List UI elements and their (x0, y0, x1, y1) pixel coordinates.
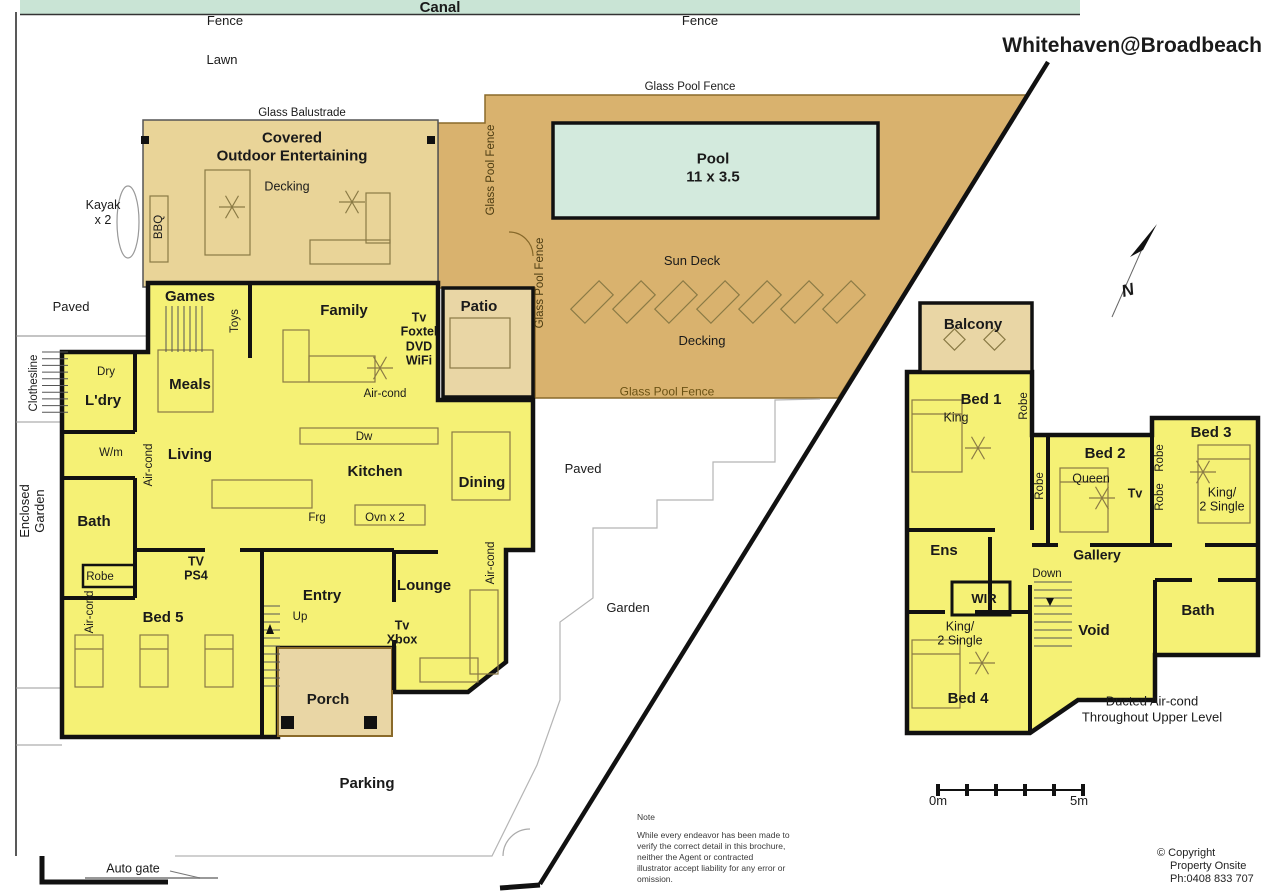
copyright-block: © CopyrightProperty OnsitePh:0408 833 70… (1157, 847, 1254, 887)
label-bed1: Bed 1 (961, 391, 1002, 409)
label-glass-pool-fence-bottom: Glass Pool Fence (620, 385, 715, 400)
label-decking-deck: Decking (679, 333, 726, 349)
label-ovn: Ovn x 2 (365, 511, 405, 525)
floor-plan: CanalFenceFenceLawnWhitehaven@Broadbeach… (0, 0, 1274, 894)
label-toys: Toys (228, 309, 242, 333)
label-robe-bed3-a: Robe (1153, 444, 1167, 472)
label-aircond-living: Air-cond (142, 444, 156, 487)
label-glass-pool-fence-top: Glass Pool Fence (645, 80, 736, 94)
boundary-foot (500, 885, 540, 888)
label-aircond-bed5: Air-cond (83, 591, 97, 634)
label-bath-upper: Bath (1181, 602, 1214, 620)
post-marker (427, 136, 435, 144)
balcony-region (920, 303, 1032, 372)
label-king-2single-bed4: King/ 2 Single (937, 620, 982, 649)
label-auto-gate: Auto gate (106, 861, 160, 876)
label-parking: Parking (339, 775, 394, 793)
note-heading: Note (637, 812, 842, 823)
label-lounge: Lounge (397, 577, 451, 595)
note-line: illustrator accept liability for any err… (637, 863, 842, 874)
label-dw: Dw (356, 430, 373, 444)
label-meals: Meals (169, 376, 211, 394)
label-bbq: BBQ (152, 215, 166, 239)
label-aircond-lounge: Air-cond (484, 542, 498, 585)
label-up: Up (293, 610, 308, 624)
label-family: Family (320, 302, 368, 320)
label-robe-hall: Robe (1033, 472, 1047, 500)
porch-post (281, 716, 294, 729)
scale-bar (938, 784, 1083, 796)
label-pool: Pool 11 x 3.5 (686, 151, 739, 188)
label-down: Down (1032, 567, 1061, 581)
label-bed2: Bed 2 (1085, 445, 1126, 463)
label-bed3: Bed 3 (1191, 424, 1232, 442)
label-bed4: Bed 4 (948, 690, 989, 708)
note-line: verify the correct detail in this brochu… (637, 841, 842, 852)
label-dry: Dry (97, 365, 115, 379)
post-marker (141, 136, 149, 144)
label-wir: WIR (971, 591, 996, 607)
label-porch: Porch (307, 691, 350, 709)
note-body: While every endeavor has been made tover… (637, 830, 842, 885)
label-entry: Entry (303, 587, 341, 605)
label-tv-bed2: Tv (1128, 486, 1143, 501)
label-glass-pool-fence-v2: Glass Pool Fence (533, 238, 547, 329)
label-bed5: Bed 5 (143, 609, 184, 627)
label-plan-title: Whitehaven@Broadbeach (1002, 33, 1262, 59)
label-frg: Frg (308, 511, 325, 525)
label-tv-xbox: Tv Xbox (387, 619, 418, 648)
label-lawn: Lawn (206, 52, 237, 68)
label-clothesline: Clothesline (27, 355, 41, 412)
label-ducted-aircond: Ducted Air-cond Throughout Upper Level (1082, 693, 1222, 724)
label-kitchen: Kitchen (347, 463, 402, 481)
label-paved-mid: Paved (565, 461, 602, 477)
label-king-2single-bed3: King/ 2 Single (1199, 486, 1244, 515)
note-line: neither the Agent or contracted (637, 852, 842, 863)
label-tv-ps4: TV PS4 (184, 555, 208, 584)
label-king-bed1: King (943, 410, 968, 425)
label-queen-bed2: Queen (1072, 471, 1110, 486)
label-living: Living (168, 446, 212, 464)
label-kayak: Kayak x 2 (86, 198, 121, 229)
label-ldry: L'dry (85, 392, 121, 410)
label-ens: Ens (930, 542, 958, 560)
label-patio: Patio (461, 298, 498, 316)
label-robe-bed1: Robe (1017, 392, 1031, 420)
label-wm: W/m (99, 446, 123, 460)
label-glass-balustrade: Glass Balustrade (258, 106, 346, 120)
copyright-line: Property Onsite (1170, 860, 1254, 873)
canal-region (20, 0, 1080, 14)
auto-gate-leader (170, 871, 200, 878)
label-robe-ground: Robe (86, 570, 114, 584)
label-tv-foxtel-dvd-wifi: Tv Foxtel DVD WiFi (401, 310, 438, 368)
north-arrow-icon (1112, 224, 1157, 317)
label-decking-covered: Decking (264, 179, 309, 194)
note-line: While every endeavor has been made to (637, 830, 842, 841)
label-enclosed-garden: Enclosed Garden (18, 484, 48, 537)
label-covered-outdoor: Covered Outdoor Entertaining (217, 130, 368, 167)
copyright-line: © Copyright (1157, 847, 1254, 860)
label-scale-5m: 5m (1070, 793, 1088, 809)
label-sun-deck: Sun Deck (664, 253, 720, 269)
copyright-line: Ph:0408 833 707 (1170, 873, 1254, 886)
label-aircond-family: Air-cond (364, 387, 407, 401)
label-glass-pool-fence-v1: Glass Pool Fence (484, 125, 498, 216)
porch-post (364, 716, 377, 729)
label-games: Games (165, 288, 215, 306)
label-bath-ground: Bath (77, 513, 110, 531)
label-robe-bed3-b: Robe (1153, 483, 1167, 511)
label-canal: Canal (420, 0, 461, 17)
label-fence-left: Fence (207, 13, 243, 29)
label-paved-left: Paved (53, 299, 90, 315)
gate-swing-arc (503, 829, 530, 856)
label-fence-right: Fence (682, 13, 718, 29)
label-balcony: Balcony (944, 316, 1002, 334)
label-garden: Garden (606, 600, 649, 616)
label-void: Void (1078, 622, 1109, 640)
note-line: omission. (637, 874, 842, 885)
disclaimer-note: Note While every endeavor has been made … (637, 812, 842, 885)
label-gallery: Gallery (1073, 546, 1120, 563)
label-dining: Dining (459, 474, 506, 492)
label-scale-0m: 0m (929, 793, 947, 809)
